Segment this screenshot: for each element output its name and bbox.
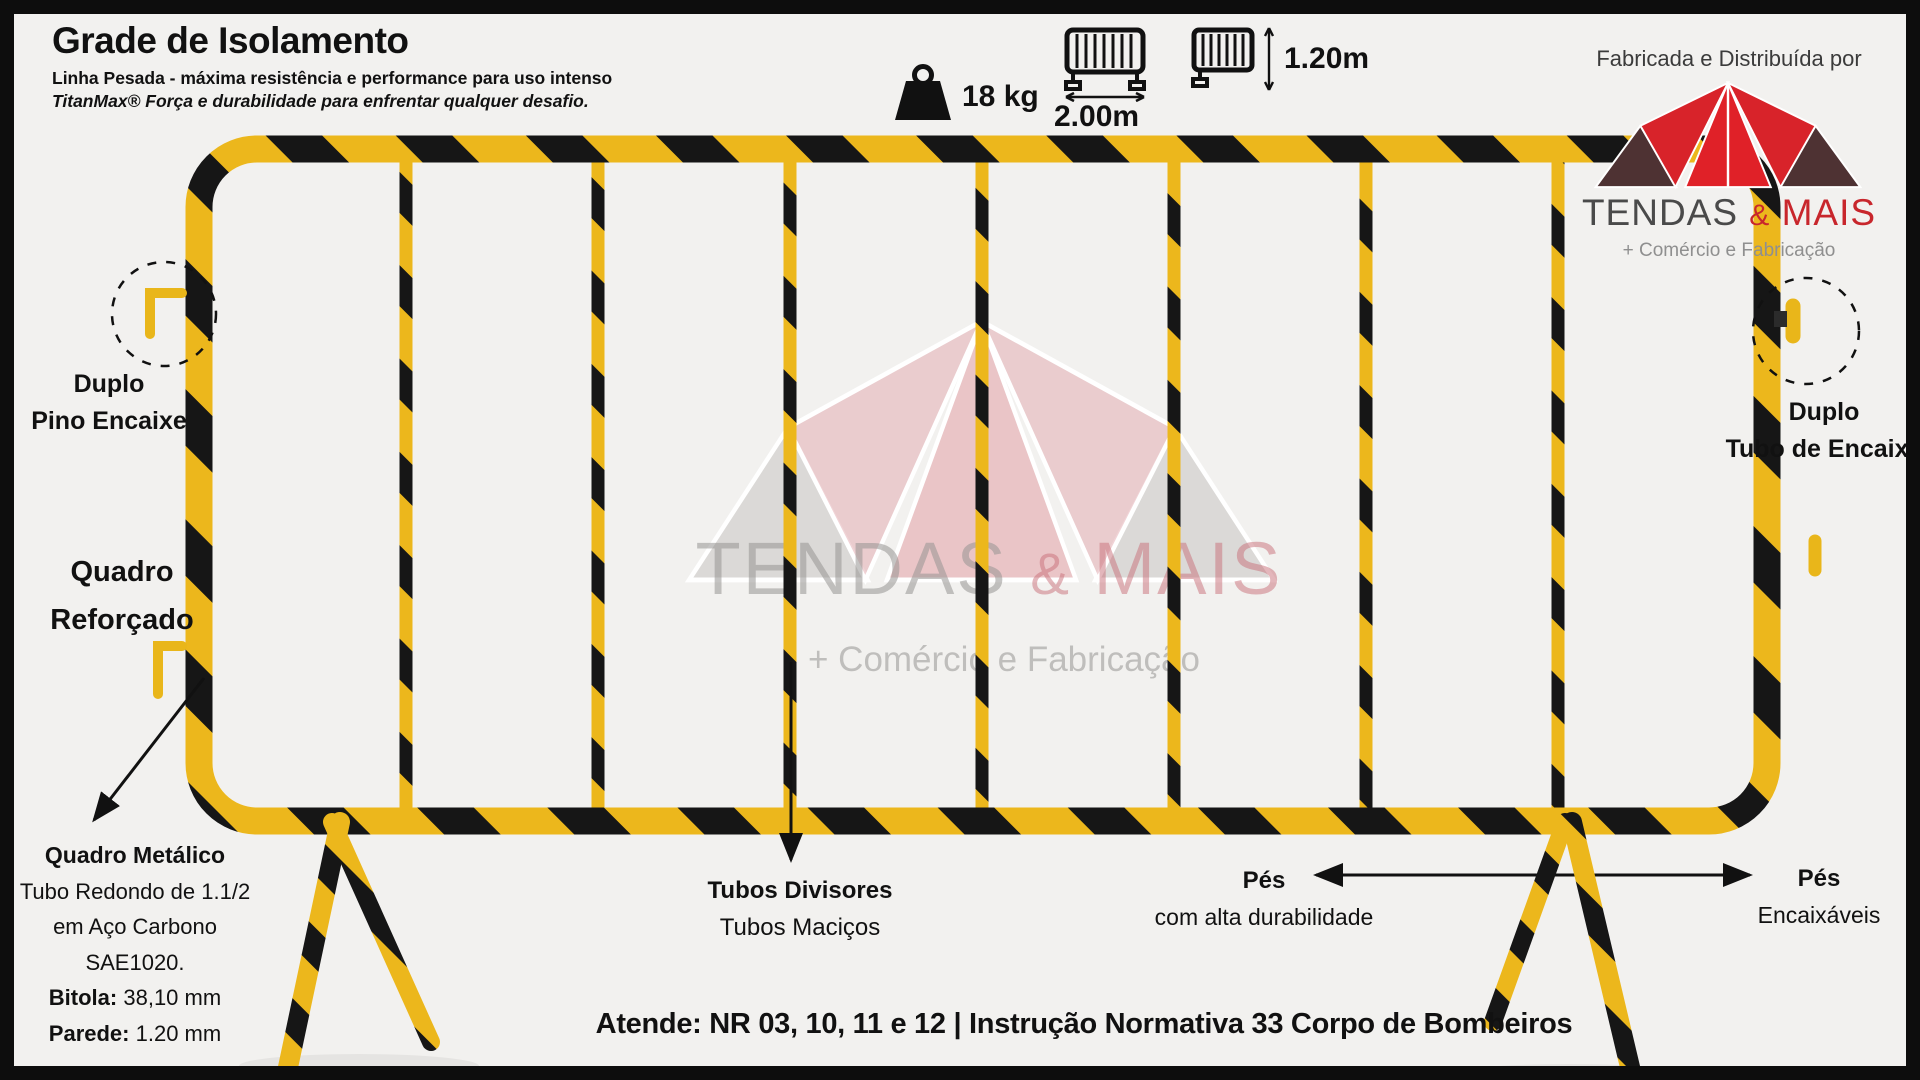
- pin-left-line2: Pino Encaixe: [16, 403, 202, 440]
- weight-icon: [890, 64, 956, 122]
- product-sheet: TENDAS & MAIS + Comércio e Fabricação: [0, 0, 1920, 1080]
- width-value: 2.00m: [1054, 100, 1139, 134]
- barrier-height-icon: [1190, 26, 1256, 90]
- brand-amp: &: [1749, 199, 1770, 232]
- metal-frame-line2: em Aço Carbono: [16, 909, 254, 945]
- brand-primary: TENDAS: [1582, 192, 1738, 233]
- feet-right-line2: Encaixáveis: [1736, 897, 1902, 934]
- barrier-width-icon: [1060, 26, 1150, 102]
- metal-frame-line4: Bitola: 38,10 mm: [16, 980, 254, 1016]
- barrier-legs: [287, 822, 1634, 1080]
- annotation-pin-left: Duplo Pino Encaixe: [16, 366, 202, 440]
- pin-left-line1: Duplo: [16, 366, 202, 403]
- subtitle-line1: Linha Pesada - máxima resistência e perf…: [52, 68, 612, 89]
- left-upper-pin: [150, 293, 182, 334]
- wall-label: Parede:: [49, 1021, 130, 1046]
- frame-line1: Quadro: [18, 548, 226, 596]
- weight-value: 18 kg: [962, 80, 1039, 114]
- annotation-socket-right: Duplo Tubo de Encaixe: [1716, 394, 1920, 468]
- feet-right-line1: Pés: [1736, 860, 1902, 897]
- height-dimension-arrow: [1260, 26, 1278, 92]
- distributor-tagline: + Comércio e Fabricação: [1569, 240, 1889, 262]
- annotation-dividers: Tubos Divisores Tubos Maciços: [672, 872, 928, 946]
- annotation-feet-right: Pés Encaixáveis: [1736, 860, 1902, 934]
- socket-bracket: [1774, 311, 1787, 327]
- metal-frame-line1: Tubo Redondo de 1.1/2: [16, 874, 254, 910]
- brand-secondary: MAIS: [1782, 192, 1876, 233]
- page-title: Grade de Isolamento: [52, 20, 409, 62]
- right-foot-shadow: [1439, 1064, 1699, 1080]
- divider-tubes: [406, 162, 1558, 814]
- annotation-reinforced-frame: Quadro Reforçado: [18, 548, 226, 644]
- tent-logo: [1582, 80, 1874, 192]
- height-value: 1.20m: [1284, 42, 1369, 76]
- left-foot-shadow: [239, 1054, 479, 1078]
- wall-value: 1.20 mm: [130, 1021, 222, 1046]
- annotation-feet-center: Pés com alta durabilidade: [1142, 862, 1386, 936]
- dividers-line1: Tubos Divisores: [672, 872, 928, 909]
- metal-frame-line3: SAE1020.: [16, 945, 254, 981]
- dividers-line2: Tubos Maciços: [672, 909, 928, 946]
- compliance-note: Atende: NR 03, 10, 11 e 12 | Instrução N…: [454, 1008, 1714, 1041]
- distributor-brand: TENDAS & MAIS: [1559, 192, 1899, 234]
- gauge-value: 38,10 mm: [117, 985, 221, 1010]
- metal-frame-heading: Quadro Metálico: [16, 838, 254, 874]
- subtitle-line2: TitanMax® Força e durabilidade para enfr…: [52, 91, 589, 112]
- frame-line2: Reforçado: [18, 596, 226, 644]
- annotation-metal-frame: Quadro Metálico Tubo Redondo de 1.1/2 em…: [16, 838, 254, 1051]
- gauge-label: Bitola:: [49, 985, 117, 1010]
- feet-center-line2: com alta durabilidade: [1142, 899, 1386, 936]
- feet-center-line1: Pés: [1142, 862, 1386, 899]
- socket-right-line1: Duplo: [1716, 394, 1920, 431]
- left-lower-pin: [158, 646, 182, 694]
- distributor-caption: Fabricada e Distribuída por: [1569, 46, 1889, 72]
- socket-right-line2: Tubo de Encaixe: [1716, 431, 1920, 468]
- metal-frame-line5: Parede: 1.20 mm: [16, 1016, 254, 1052]
